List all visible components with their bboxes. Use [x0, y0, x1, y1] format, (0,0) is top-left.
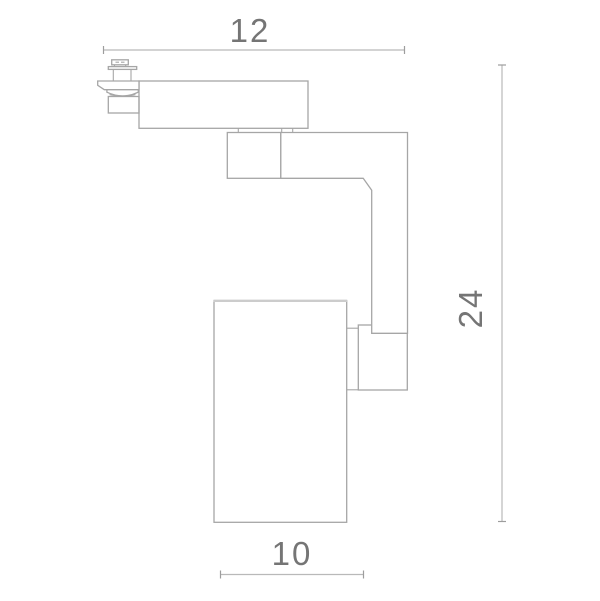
dimension-right-label: 24 [452, 288, 489, 329]
page: { "drawing": { "title": "Track spotlight… [0, 0, 600, 601]
housing-body [139, 81, 308, 128]
mount-block [347, 325, 408, 390]
adapter-lower-box [108, 97, 139, 114]
spotlight-technical-drawing: 12 24 10 [0, 0, 600, 601]
drawing-canvas: 12 24 10 [0, 0, 600, 601]
lamp-cylinder [214, 301, 348, 523]
dimension-right-height: 24 [452, 65, 506, 522]
dimension-top-label: 12 [230, 12, 271, 49]
dimension-bottom-width: 10 [221, 535, 364, 579]
adapter-knob [112, 60, 129, 65]
dimension-top-width: 12 [104, 12, 405, 54]
adapter-lip [98, 81, 139, 90]
gimbal-block-body [227, 133, 280, 179]
lamp-cylinder-body [214, 301, 347, 523]
mount-block-body [358, 325, 407, 390]
adapter-flange [108, 67, 136, 70]
housing [139, 81, 308, 128]
track-adapter [98, 60, 139, 113]
dimension-bottom-label: 10 [272, 535, 313, 572]
